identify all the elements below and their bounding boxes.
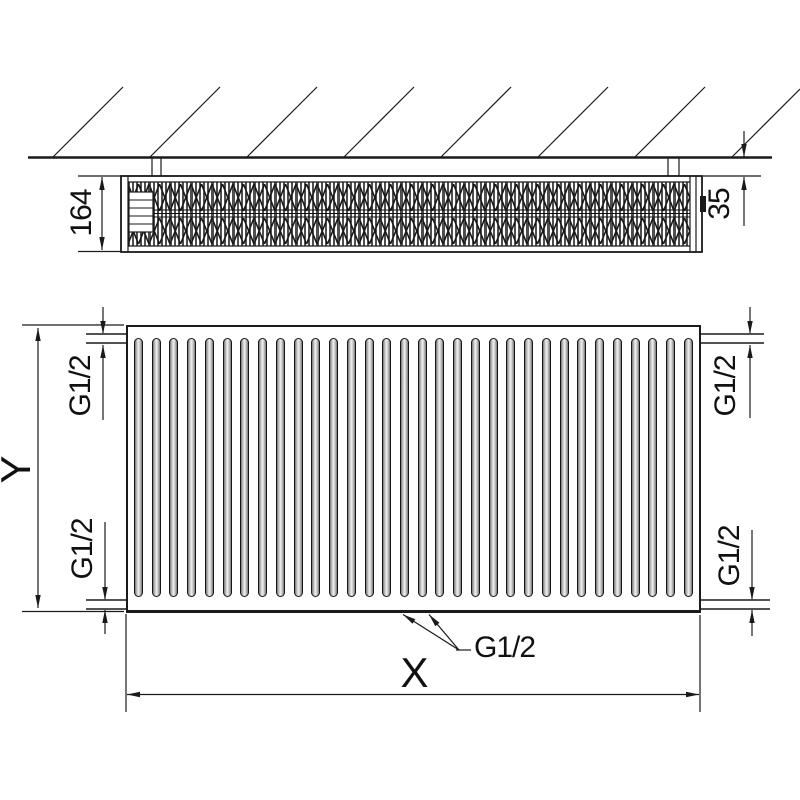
radiator-channel: [382, 338, 391, 597]
radiator-channel: [223, 338, 232, 597]
radiator-channel: [347, 338, 356, 597]
width-dimension-label: X: [400, 649, 427, 697]
g12-label-bottom-center: G1/2: [474, 631, 535, 665]
radiator-channel: [205, 338, 214, 597]
radiator-channel: [187, 338, 196, 597]
radiator-front-view: [126, 325, 701, 613]
radiator-channel: [169, 338, 178, 597]
dimension-g12-bottom-left: [102, 522, 107, 634]
dimension-g12-top-left: [100, 307, 105, 420]
radiator-top-view: [121, 176, 706, 252]
g12-label-bottom-right: G1/2: [713, 525, 747, 586]
radiator-channel: [418, 338, 427, 597]
radiator-channel: [648, 338, 657, 597]
g12-label-top-right: G1/2: [709, 355, 743, 416]
radiator-channel: [453, 338, 462, 597]
radiator-channel: [400, 338, 409, 597]
radiator-channel: [524, 338, 533, 597]
g12-label-top-left: G1/2: [64, 355, 98, 416]
radiator-channel: [684, 338, 693, 597]
radiator-channel: [613, 338, 622, 597]
radiator-channel: [329, 338, 338, 597]
connection-port-bottom-right: [701, 600, 770, 609]
radiator-channel: [666, 338, 675, 597]
radiator-channel: [489, 338, 498, 597]
depth-dimension-label: 164: [65, 189, 99, 236]
connection-port-top-left: [86, 334, 126, 343]
technical-drawing: 164 35 Y X G1/2 G1/2 G1/2 G1/2 G1/2: [0, 0, 800, 800]
radiator-channel: [435, 338, 444, 597]
g12-label-bottom-left: G1/2: [66, 518, 100, 579]
dimension-g12-bottom-right: [749, 530, 754, 636]
radiator-channel: [577, 338, 586, 597]
radiator-channel: [560, 338, 569, 597]
radiator-channel: [134, 338, 143, 597]
bracket-plate: [129, 192, 153, 232]
mounting-bracket-right: [668, 159, 679, 177]
radiator-channel: [506, 338, 515, 597]
channel-row: [134, 338, 693, 597]
radiator-channel: [631, 338, 640, 597]
radiator-channel: [311, 338, 320, 597]
radiator-channel: [542, 338, 551, 597]
wall-hatch: [53, 87, 800, 157]
dimension-g12-top-right: [747, 307, 752, 418]
height-dimension-label: Y: [0, 456, 40, 483]
radiator-channel: [471, 338, 480, 597]
radiator-channel: [240, 338, 249, 597]
radiator-channel: [258, 338, 267, 597]
radiator-channel: [152, 338, 161, 597]
connection-port-bottom-left: [86, 600, 126, 609]
connection-port-top-right: [701, 334, 764, 343]
leader-bottom-connections: [403, 615, 471, 651]
mounting-bracket-left: [152, 159, 161, 177]
radiator-channel: [365, 338, 374, 597]
radiator-channel: [276, 338, 285, 597]
radiator-channel: [294, 338, 303, 597]
wall-gap-dimension-label: 35: [703, 188, 737, 219]
radiator-channel: [595, 338, 604, 597]
